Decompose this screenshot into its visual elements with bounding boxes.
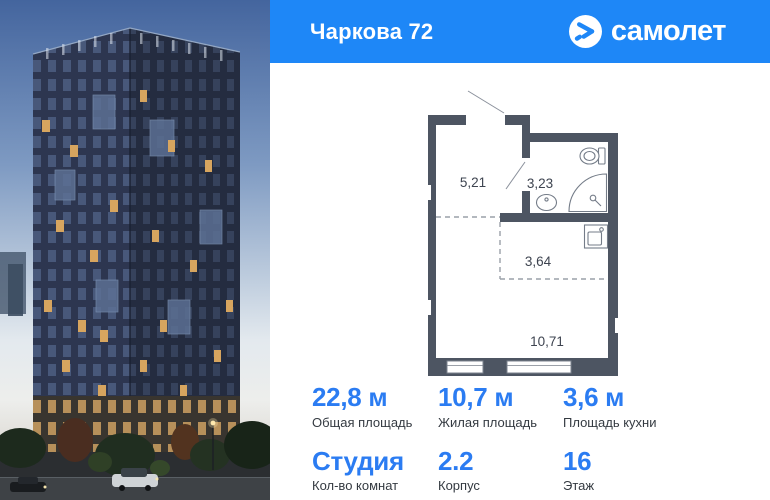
stat-label: Площадь кухни xyxy=(563,415,713,430)
header-band: Чаркова 72 самолет xyxy=(270,0,770,63)
building-photo xyxy=(0,0,270,500)
page-title: Чаркова 72 xyxy=(310,19,433,45)
stat-total-area: 22,8 м Общая площадь xyxy=(312,383,438,430)
stat-value: 10,7 м xyxy=(438,383,563,412)
stat-value: Студия xyxy=(312,447,438,476)
floor-plan: 5,21 3,23 3,64 10,71 xyxy=(420,86,632,386)
stat-rooms: Студия Кол-во комнат xyxy=(312,447,438,494)
brand-name: самолет xyxy=(611,17,726,46)
stat-label: Общая площадь xyxy=(312,415,438,430)
building-photo-art xyxy=(0,0,270,500)
stat-value: 3,6 м xyxy=(563,383,713,412)
room-label-bathroom: 3,23 xyxy=(527,176,553,191)
plan-windows xyxy=(447,361,571,373)
room-label-hallway: 5,21 xyxy=(460,175,486,190)
stat-building: 2.2 Корпус xyxy=(438,447,563,494)
brand-logo: самолет xyxy=(569,15,726,48)
samolet-logo-icon xyxy=(569,15,602,48)
apartment-stats: 22,8 м Общая площадь 10,7 м Жилая площад… xyxy=(312,383,713,493)
stat-label: Этаж xyxy=(563,478,713,493)
stat-floor: 16 Этаж xyxy=(563,447,713,494)
stat-kitchen-area: 3,6 м Площадь кухни xyxy=(563,383,713,430)
stat-label: Жилая площадь xyxy=(438,415,563,430)
stat-value: 16 xyxy=(563,447,713,476)
stat-value: 2.2 xyxy=(438,447,563,476)
stat-label: Кол-во комнат xyxy=(312,478,438,493)
basin-icon xyxy=(537,195,557,211)
floor-plan-svg: 5,21 3,23 3,64 10,71 xyxy=(420,86,632,386)
kitchen-sink-icon xyxy=(585,225,608,248)
stat-living-area: 10,7 м Жилая площадь xyxy=(438,383,563,430)
stat-value: 22,8 м xyxy=(312,383,438,412)
room-label-living: 10,71 xyxy=(530,334,564,349)
room-label-kitchen: 3,64 xyxy=(525,254,552,269)
stat-label: Корпус xyxy=(438,478,563,493)
zone-dashed-lines xyxy=(436,217,608,279)
